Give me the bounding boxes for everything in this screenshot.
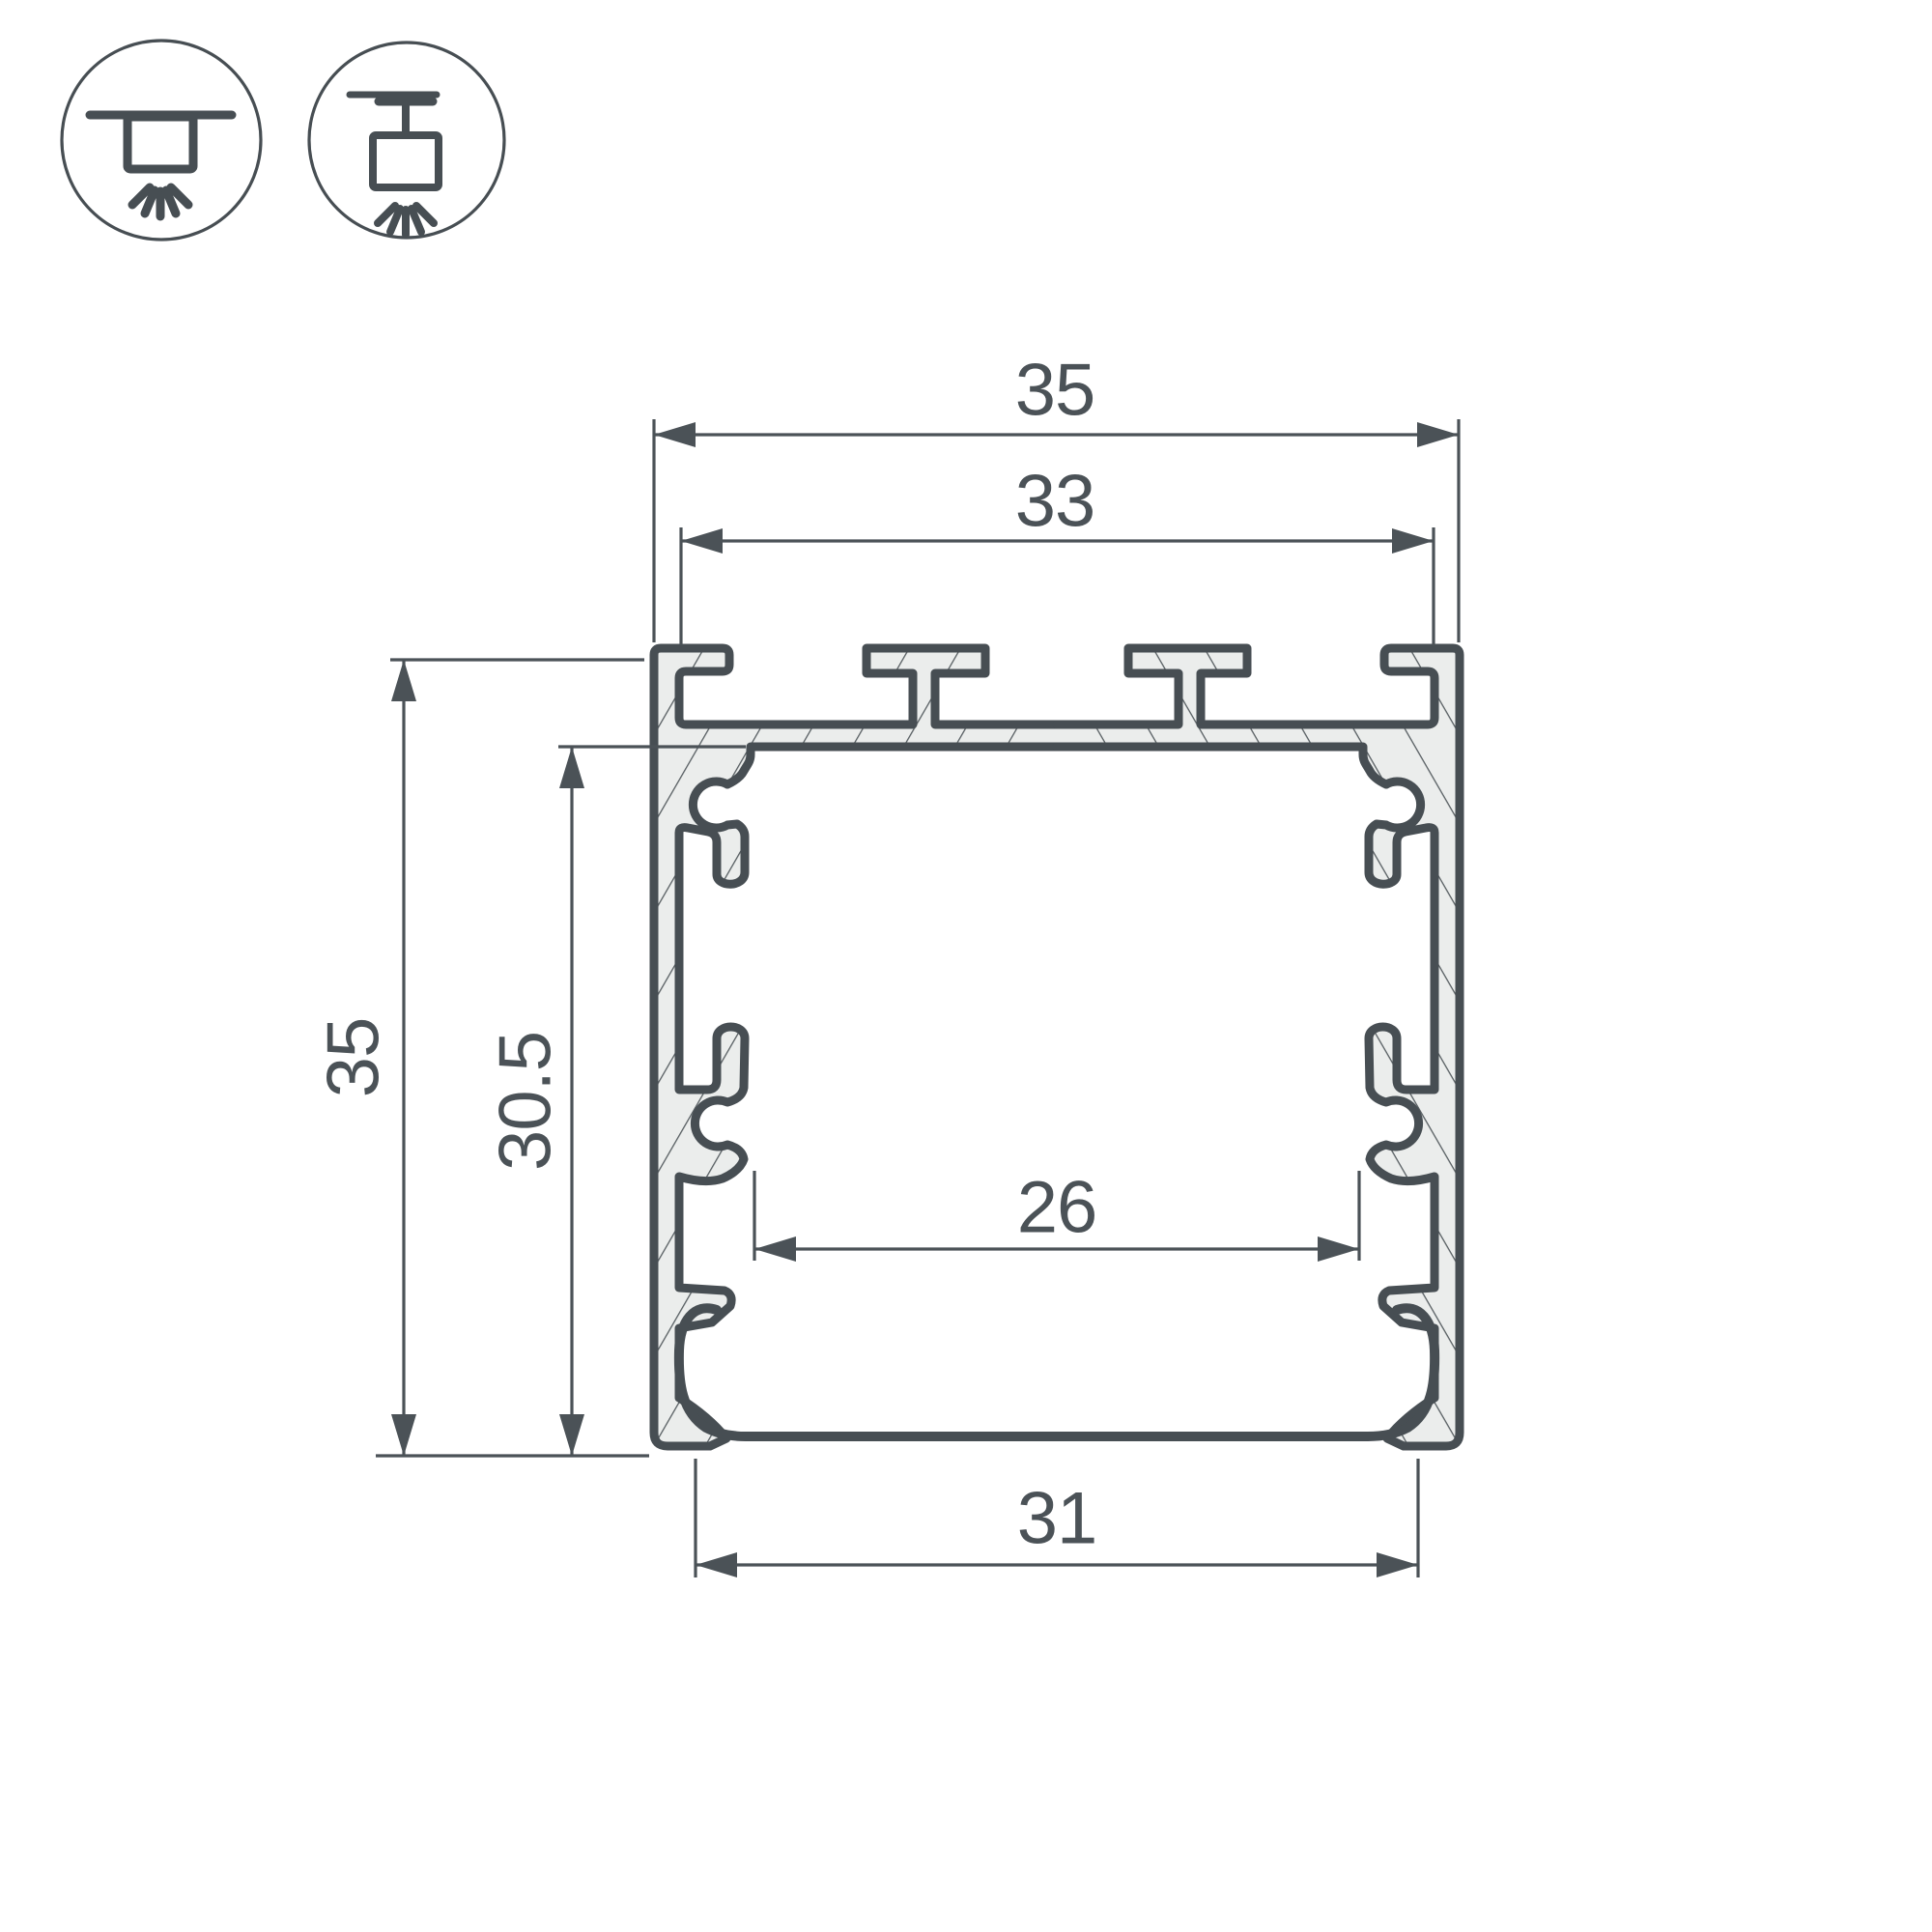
luminaire-box [373,135,439,187]
light-rays [132,187,188,216]
light-rays [378,206,434,235]
dimension-top-slot-span [681,527,1434,645]
arrowhead [391,660,416,701]
arrowhead [1377,1552,1418,1577]
aluminum-body [654,648,1460,1446]
drawing-canvas: 35 33 35 30.5 26 31 [0,0,1932,1932]
arrowhead [696,1552,737,1577]
hatching [654,648,1460,1446]
luminaire-box [128,117,193,169]
pendant-mount-icon [309,43,504,238]
dimension-label: 30.5 [485,1032,567,1171]
dimension-label: 35 [1015,350,1095,432]
arrowhead [559,1414,584,1456]
arrowhead [754,1236,796,1262]
arrowhead [1318,1236,1359,1262]
diffuser-cover [679,1308,1435,1436]
arrowhead [681,528,723,554]
arrowhead [654,422,696,447]
dimension-label: 33 [1015,461,1095,543]
surface-mount-icon [62,41,261,240]
dimension-label: 35 [313,1018,395,1098]
arrowhead [391,1414,416,1456]
dimension-label: 31 [1017,1478,1097,1560]
dimension-label: 26 [1017,1167,1097,1249]
arrowhead [1392,528,1434,554]
arrowhead [559,747,584,788]
arrowhead [1417,422,1459,447]
profile-cross-section-drawing: 35 33 35 30.5 26 31 [0,0,1932,1932]
